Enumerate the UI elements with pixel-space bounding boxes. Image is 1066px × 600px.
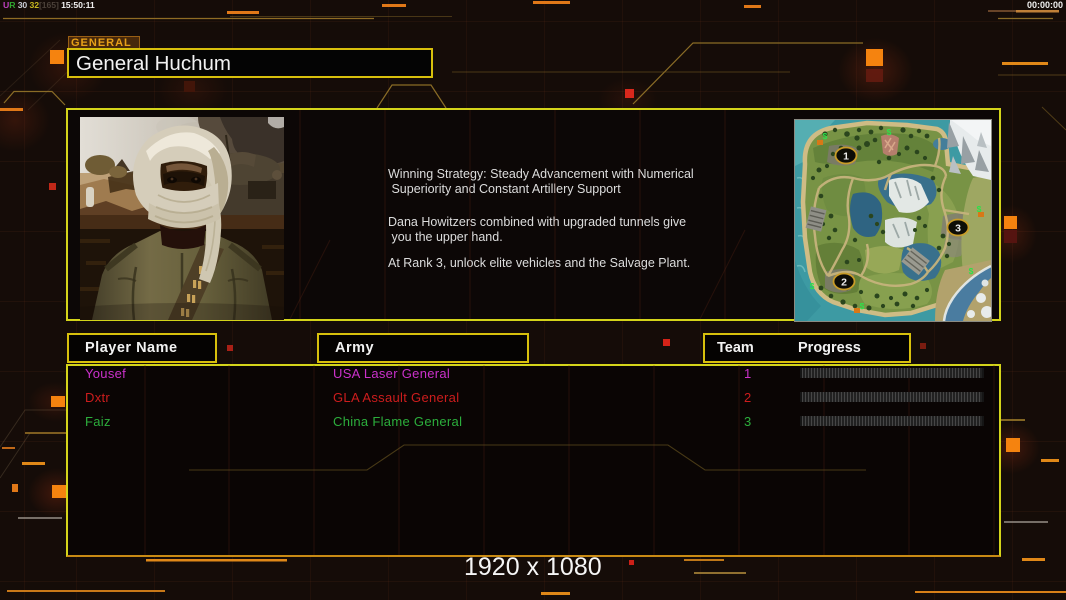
svg-text:$: $ (823, 131, 828, 141)
svg-text:1: 1 (843, 151, 849, 163)
svg-text:$: $ (810, 281, 815, 291)
svg-text:$: $ (969, 266, 974, 276)
svg-text:3: 3 (955, 223, 961, 235)
svg-text:2: 2 (841, 277, 847, 289)
svg-text:$: $ (887, 127, 892, 137)
svg-text:$: $ (860, 301, 865, 311)
